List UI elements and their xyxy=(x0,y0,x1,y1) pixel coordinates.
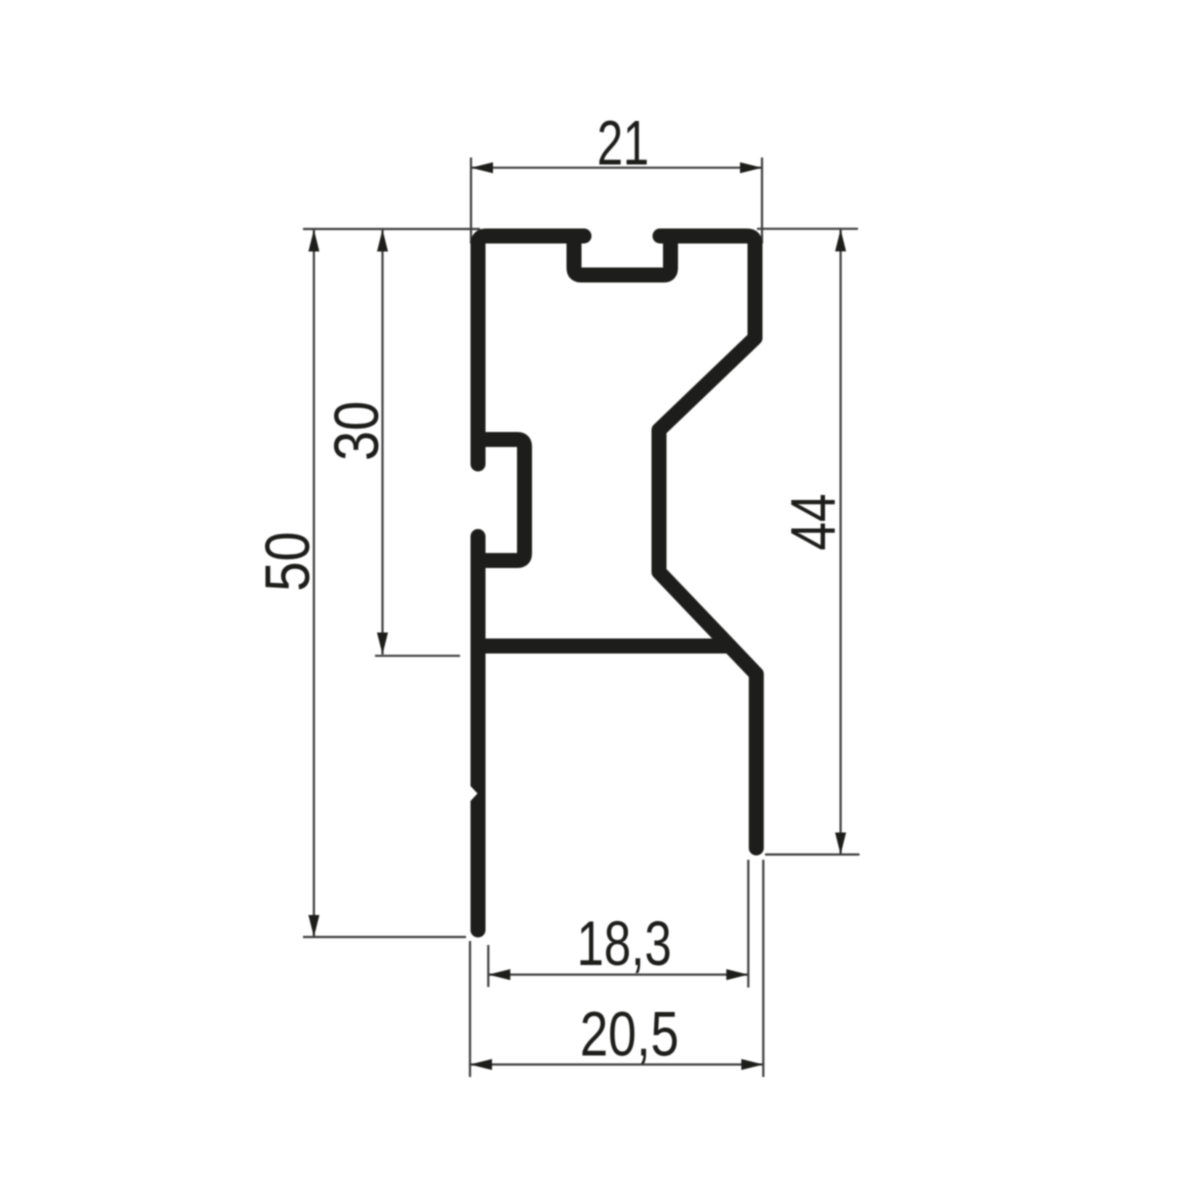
svg-text:20,5: 20,5 xyxy=(580,999,679,1069)
svg-text:21: 21 xyxy=(597,108,649,178)
svg-text:44: 44 xyxy=(779,493,849,550)
svg-text:18,3: 18,3 xyxy=(577,909,672,979)
svg-text:30: 30 xyxy=(322,401,392,461)
svg-text:50: 50 xyxy=(253,531,323,591)
